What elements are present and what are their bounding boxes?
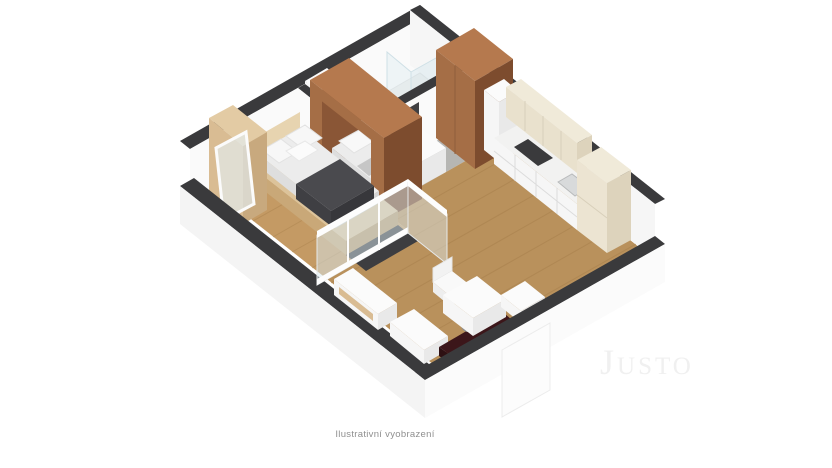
fridge-cabinet-side bbox=[607, 170, 631, 253]
floorplan-3d-render: Ilustrativní vyobrazení Justo bbox=[0, 0, 832, 468]
apartment-isometric bbox=[0, 0, 832, 468]
caption-text: Ilustrativní vyobrazení bbox=[0, 429, 770, 440]
justo-watermark: Justo bbox=[600, 341, 694, 383]
